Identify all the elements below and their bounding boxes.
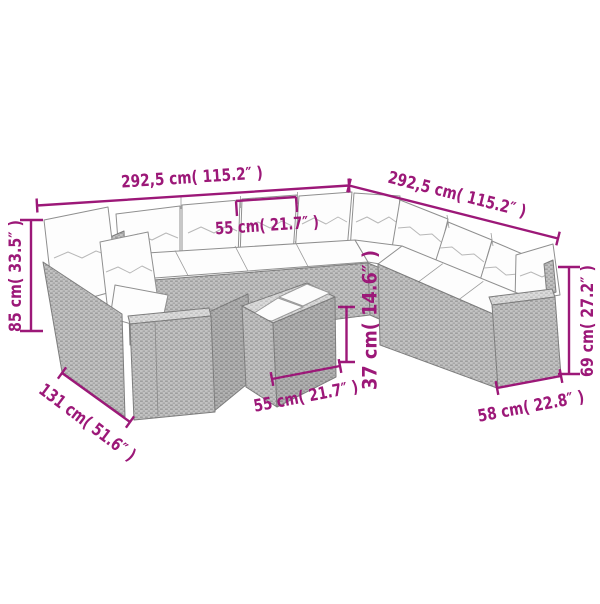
armrest-face [492,297,561,388]
dimension-label-armrest-height: 69 cm( 27.2″ ) [578,265,598,377]
dimension-label-table-height: 37 cm( 14.6″ ) [359,250,382,390]
lounge-set-diagram: 292,5 cm( 115.2″ ) 292,5 cm( 115.2″ ) 55… [0,0,600,600]
dimension-label-back-height: 85 cm( 33.5″ ) [6,220,26,332]
armrest-face [130,316,215,420]
product-dimension-image: 292,5 cm( 115.2″ ) 292,5 cm( 115.2″ ) 55… [0,0,600,600]
